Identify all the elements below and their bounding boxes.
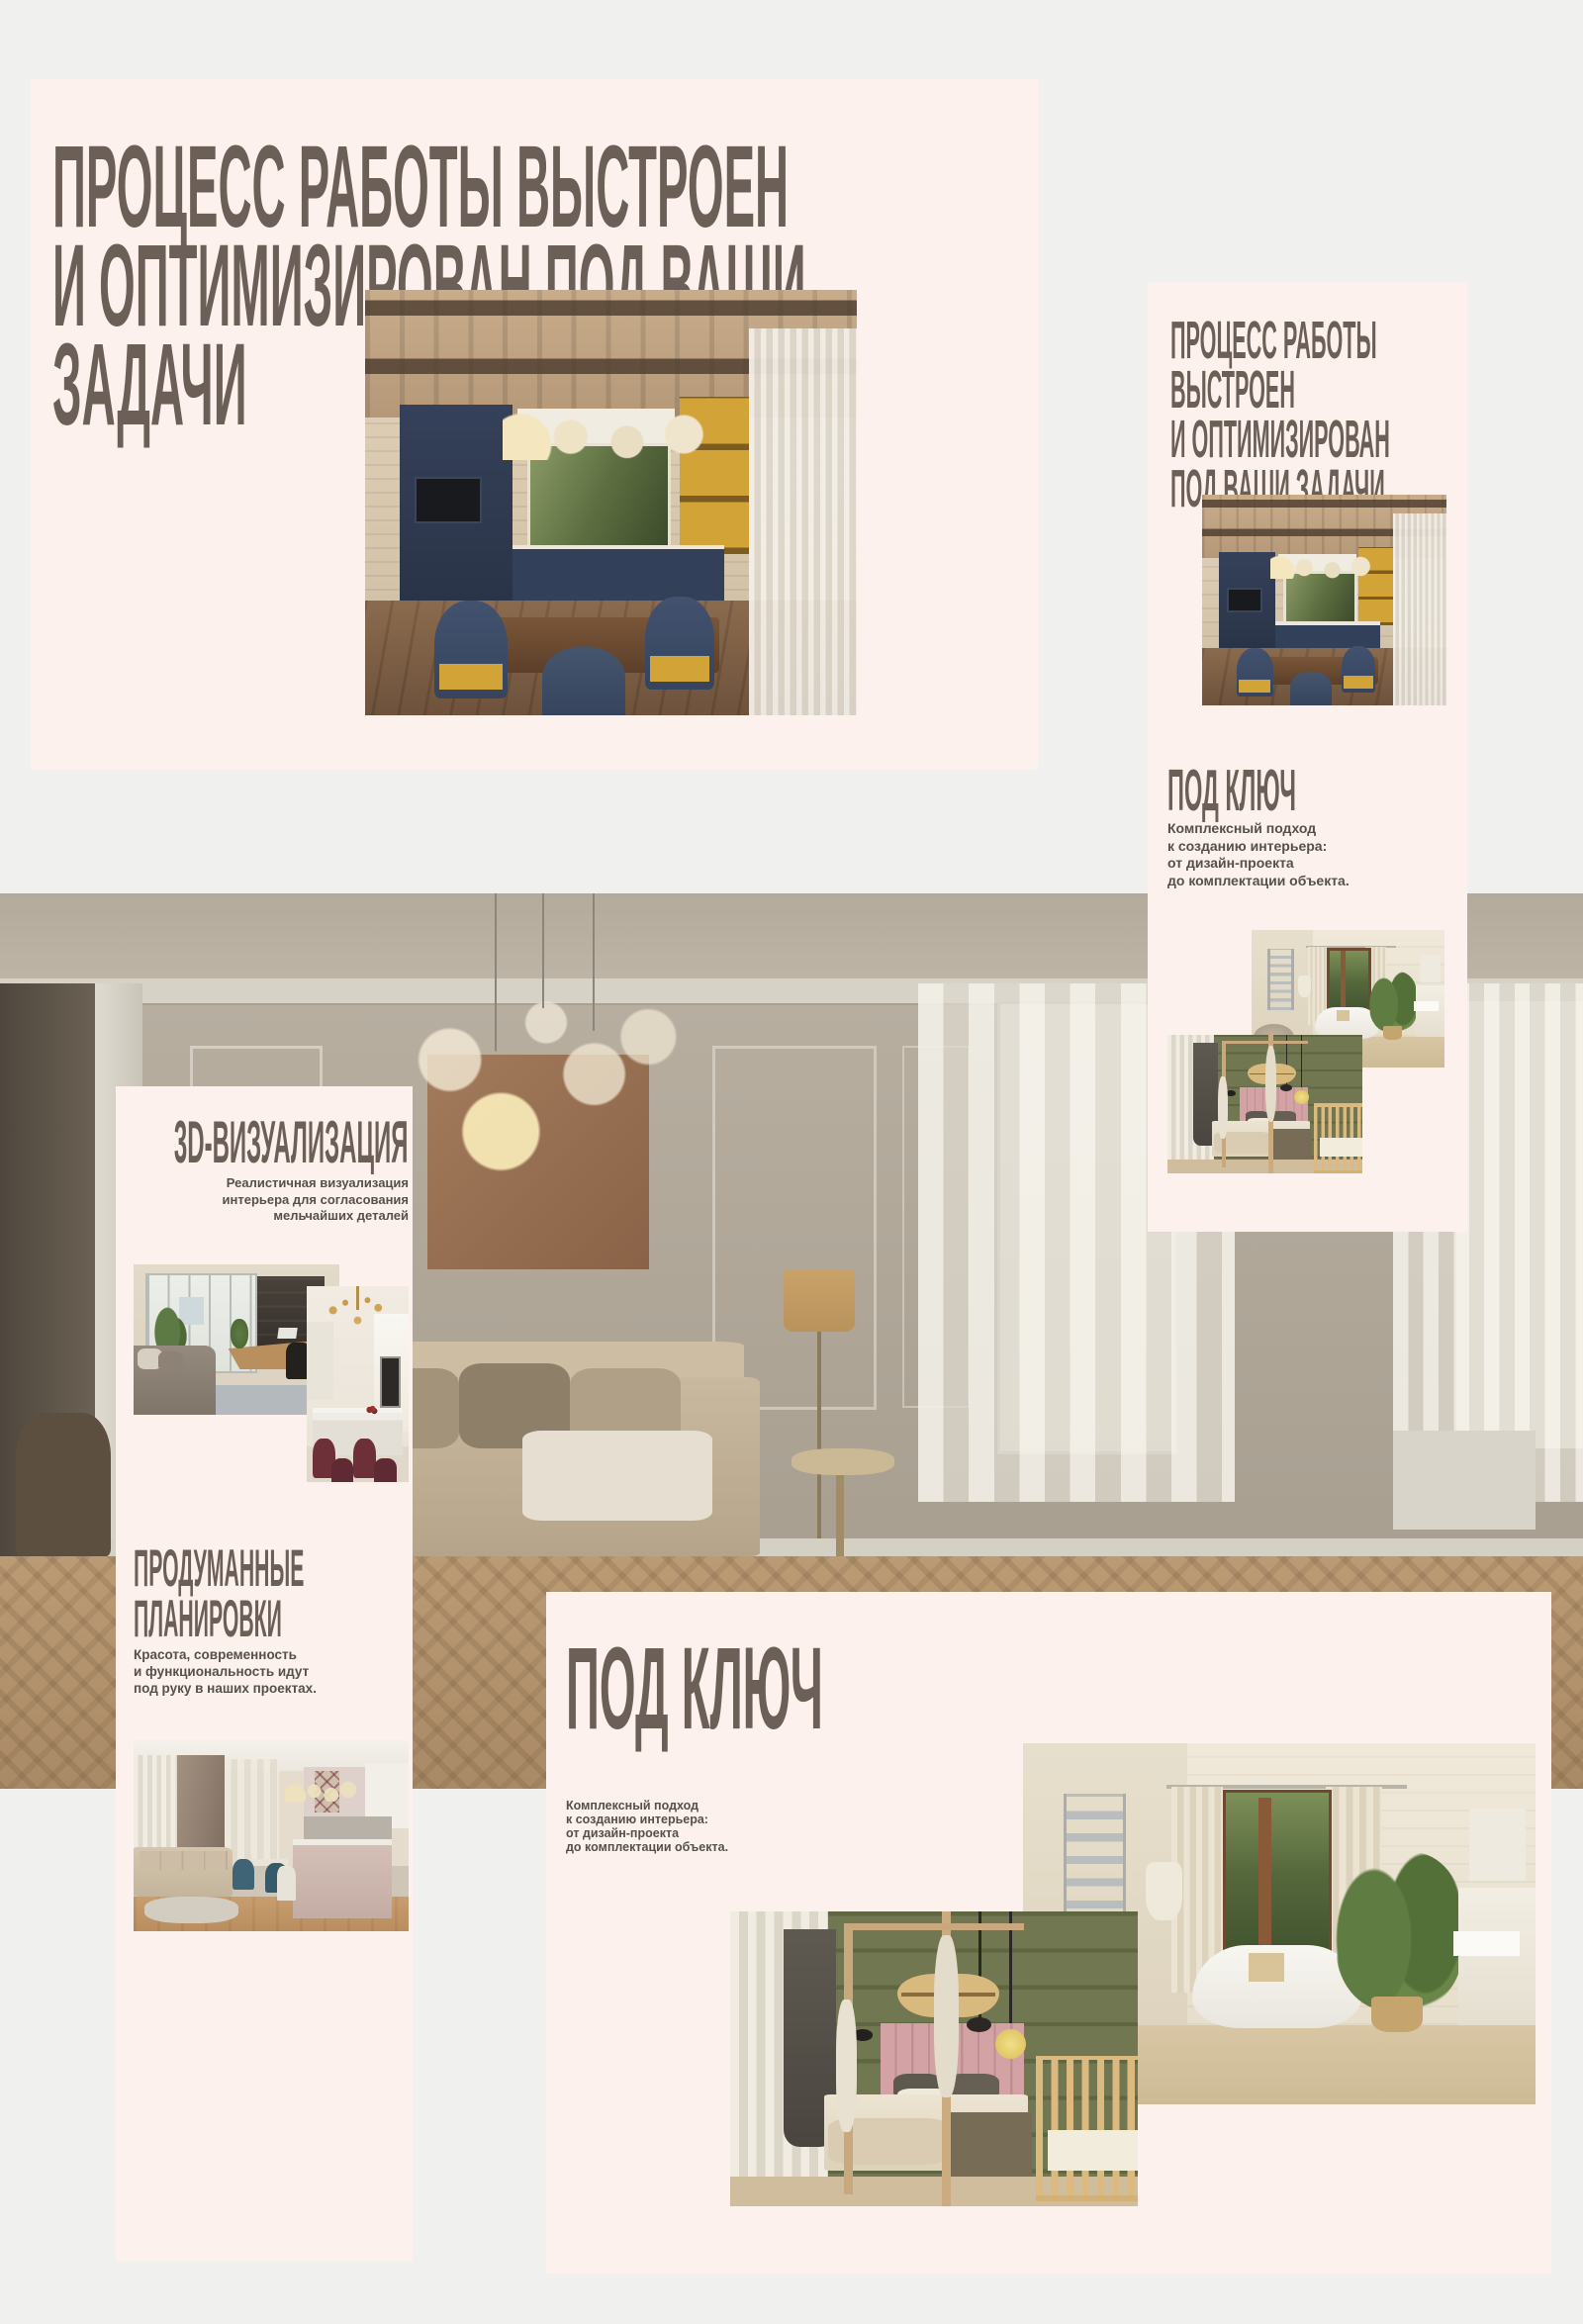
- card-turnkey: ПОД КЛЮЧ Комплексный подход к созданию и…: [546, 1592, 1551, 2274]
- livingroom-side-table-art: [791, 1448, 894, 1475]
- bathroom-plant-basket-art: [1371, 1997, 1423, 2033]
- livingroom-glass-chandelier-art: [396, 893, 697, 1180]
- heading-line: ПОД КЛЮЧ: [566, 1639, 823, 1738]
- bedroom-crib-mattress-art: [1048, 2130, 1138, 2172]
- card-process-small: ПРОЦЕСС РАБОТЫ ВЫСТРОЕН И ОПТИМИЗИРОВАН …: [1148, 282, 1467, 1232]
- gold-kitchen-burgundy-chair-art: [374, 1458, 397, 1482]
- portfolio-collage-page: ПРОЦЕСС РАБОТЫ ВЫСТРОЕН И ОПТИМИЗИРОВАН …: [0, 0, 1583, 2324]
- body-line: к созданию интерьера:: [1167, 838, 1350, 856]
- bathroom-towel-ladder-art: [1267, 949, 1294, 1009]
- heading-line: ПЛАНИРОВКИ: [134, 1594, 304, 1644]
- livingkitchen-rug-art: [144, 1897, 238, 1923]
- gold-kitchen-burgundy-chair-art: [353, 1439, 376, 1478]
- body-line: от дизайн-проекта: [566, 1826, 728, 1840]
- bathroom-tree-trunk-art: [1341, 951, 1346, 1013]
- kitchen-chair-cushion-art: [439, 664, 504, 690]
- heading-line: ПРОДУМАННЫЕ: [134, 1543, 304, 1594]
- kitchen-curtain-art: [749, 328, 857, 715]
- livingroom-radiator-art: [1393, 1431, 1536, 1530]
- body-line: от дизайн-проекта: [1167, 855, 1350, 873]
- livingkitchen-pendant-lights-art: [285, 1775, 362, 1802]
- bedroom-canopy-fabric-art: [1218, 1076, 1228, 1139]
- bedroom-photo: [730, 1911, 1138, 2206]
- gold-kitchen-photo: [307, 1286, 409, 1482]
- bathroom-vanity-art: [1458, 1888, 1536, 2025]
- turnkey-heading: ПОД КЛЮЧ: [566, 1639, 1209, 1738]
- body-line: к созданию интерьера:: [566, 1813, 728, 1826]
- card-process-small-heading: ПРОЦЕСС РАБОТЫ ВЫСТРОЕН И ОПТИМИЗИРОВАН …: [1170, 316, 1583, 513]
- bathroom-mirror-art: [1469, 1809, 1526, 1881]
- bathroom-palm-plant-art: [1336, 1852, 1464, 2011]
- kitchen-pendant-lights-art: [1270, 554, 1383, 580]
- bathroom-robe-art: [1298, 976, 1312, 997]
- livingroom-lamp-stem-art: [817, 1332, 822, 1537]
- office-laptop-art: [277, 1328, 297, 1339]
- gold-kitchen-fruit-bowl-art: [366, 1404, 378, 1416]
- livingroom-floor-lamp-art: [784, 1269, 855, 1332]
- heading-line: ПОД КЛЮЧ: [1167, 762, 1296, 820]
- bedroom-crib-mattress-art: [1320, 1138, 1362, 1158]
- office-cushion-art: [158, 1351, 183, 1371]
- bathroom-tree-trunk-art: [1258, 1798, 1271, 1960]
- body-line: и функциональность идут: [134, 1663, 317, 1680]
- livingkitchen-stool-art: [277, 1866, 296, 1901]
- heading-line: ВЫСТРОЕН: [1170, 365, 1390, 415]
- heading-line: 3D-ВИЗУАЛИЗАЦИЯ: [174, 1115, 409, 1170]
- bathroom-towel-art: [1337, 1010, 1350, 1021]
- bathroom-mirror-art: [1420, 955, 1441, 982]
- body-line: до комплектации объекта.: [566, 1840, 728, 1854]
- bathroom-plant-basket-art: [1383, 1026, 1403, 1040]
- kitchen-pendant-lights-art: [503, 409, 729, 460]
- bedroom-canopy-fabric-art: [1265, 1046, 1277, 1122]
- bedroom-blanket-art: [1268, 1129, 1311, 1160]
- kitchen-chair-cushion-art: [1239, 680, 1270, 693]
- livingkitchen-cushions-art: [140, 1851, 228, 1870]
- body-line: Реалистичная визуализация: [223, 1175, 410, 1192]
- turnkey-subheading: ПОД КЛЮЧ: [1167, 762, 1489, 820]
- card-visualization: 3D-ВИЗУАЛИЗАЦИЯ Реалистичная визуализаци…: [116, 1086, 413, 2261]
- livingroom-side-table-leg-art: [836, 1475, 844, 1555]
- bedroom-canopy-fabric-art: [836, 1999, 857, 2132]
- bedroom-photo: [1167, 1035, 1362, 1173]
- living-kitchen-photo: [134, 1740, 409, 1931]
- kitchen-photo: [1202, 495, 1446, 705]
- bedroom-canopy-fabric-art: [934, 1935, 959, 2097]
- livingkitchen-sheer-art: [225, 1759, 280, 1858]
- kitchen-chair-art: [542, 647, 625, 715]
- body-line: интерьера для согласования: [223, 1192, 410, 1209]
- gold-kitchen-chandelier-art: [317, 1290, 398, 1341]
- livingroom-dark-chair-art: [16, 1413, 111, 1556]
- gold-kitchen-burgundy-chair-art: [331, 1458, 354, 1482]
- body-line: Красота, современность: [134, 1646, 317, 1663]
- bedroom-yellow-lamp-art: [995, 2029, 1026, 2059]
- kitchen-microwave-art: [415, 477, 483, 523]
- body-line: Комплексный подход: [566, 1799, 728, 1813]
- body-line: до комплектации объекта.: [1167, 873, 1350, 890]
- bedroom-black-lamp-art: [967, 2017, 991, 2032]
- bedroom-canopy-beam-art: [1222, 1041, 1308, 1045]
- planning-heading: ПРОДУМАННЫЕ ПЛАНИРОВКИ: [134, 1543, 560, 1644]
- gold-kitchen-oven-art: [380, 1356, 400, 1408]
- visualization-heading: 3D-ВИЗУАЛИЗАЦИЯ: [0, 1115, 409, 1170]
- bathroom-palm-plant-art: [1369, 972, 1418, 1032]
- kitchen-window-art: [1283, 571, 1357, 627]
- planning-description: Красота, современность и функциональност…: [134, 1646, 317, 1697]
- bathroom-sink-art: [1414, 1001, 1439, 1011]
- kitchen-chair-cushion-art: [650, 656, 709, 682]
- turnkey-description: Комплексный подход к созданию интерьера:…: [1167, 820, 1350, 889]
- bedroom-blanket-art: [942, 2112, 1032, 2178]
- bathroom-vanity-art: [1416, 985, 1444, 1038]
- bathroom-sink-art: [1453, 1931, 1520, 1957]
- card-process-large: ПРОЦЕСС РАБОТЫ ВЫСТРОЕН И ОПТИМИЗИРОВАН …: [31, 79, 1038, 770]
- bedroom-canopy-beam-art: [844, 1923, 1023, 1930]
- heading-line: ПРОЦЕСС РАБОТЫ: [1170, 316, 1390, 365]
- kitchen-lower-cabinets-art: [512, 545, 724, 604]
- kitchen-photo: [365, 290, 857, 715]
- bathroom-towel-art: [1249, 1953, 1284, 1982]
- livingkitchen-island-art: [293, 1839, 392, 1917]
- body-line: под руку в наших проектах.: [134, 1680, 317, 1697]
- livingkitchen-blue-chair-art: [233, 1859, 254, 1890]
- kitchen-curtain-art: [1393, 513, 1446, 705]
- kitchen-chair-art: [1290, 672, 1332, 705]
- body-line: мельчайших деталей: [223, 1208, 410, 1225]
- kitchen-microwave-art: [1227, 588, 1262, 612]
- heading-line: И ОПТИМИЗИРОВАН: [1170, 415, 1390, 464]
- visualization-description: Реалистичная визуализация интерьера для …: [223, 1175, 410, 1225]
- bedroom-yellow-lamp-art: [1294, 1090, 1309, 1104]
- bathroom-robe-art: [1146, 1862, 1181, 1919]
- kitchen-chair-cushion-art: [1344, 676, 1373, 689]
- livingkitchen-backsplash-art: [304, 1816, 392, 1839]
- office-plant-art: [231, 1319, 249, 1348]
- turnkey-description: Комплексный подход к созданию интерьера:…: [566, 1799, 728, 1854]
- livingroom-blanket-art: [522, 1431, 712, 1521]
